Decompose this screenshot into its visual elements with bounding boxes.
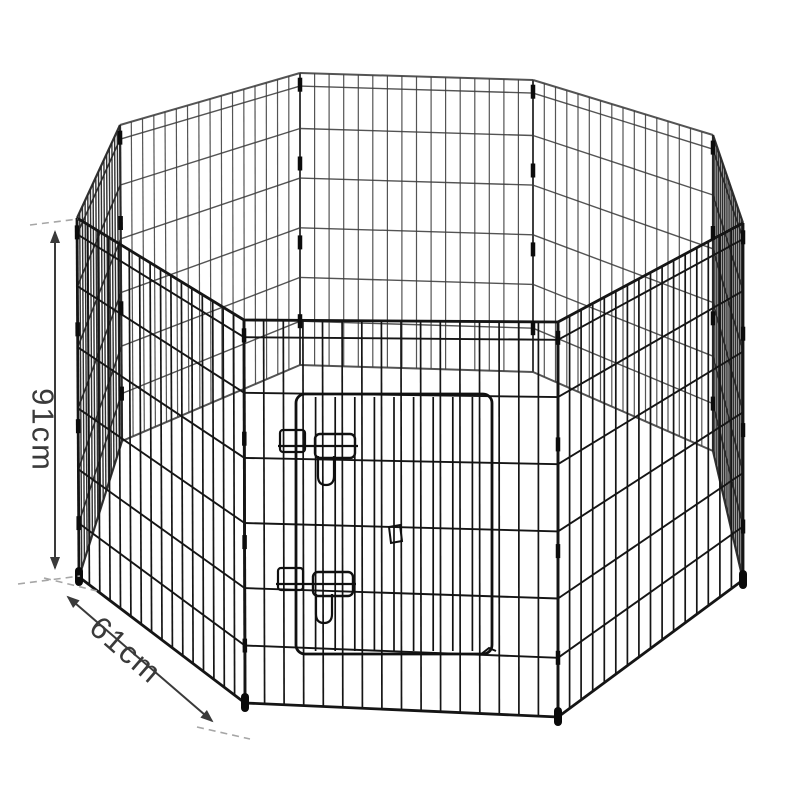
panel-back-center (300, 73, 533, 372)
panel-front-door-panel (244, 320, 558, 717)
panel-right-side (713, 135, 743, 580)
playpen-illustration (0, 0, 800, 800)
panel-back-left (120, 73, 300, 441)
product-dimension-image: 91cm 61cm (0, 0, 800, 800)
door-latch (278, 430, 358, 485)
height-dimension-label: 91cm (28, 388, 59, 472)
